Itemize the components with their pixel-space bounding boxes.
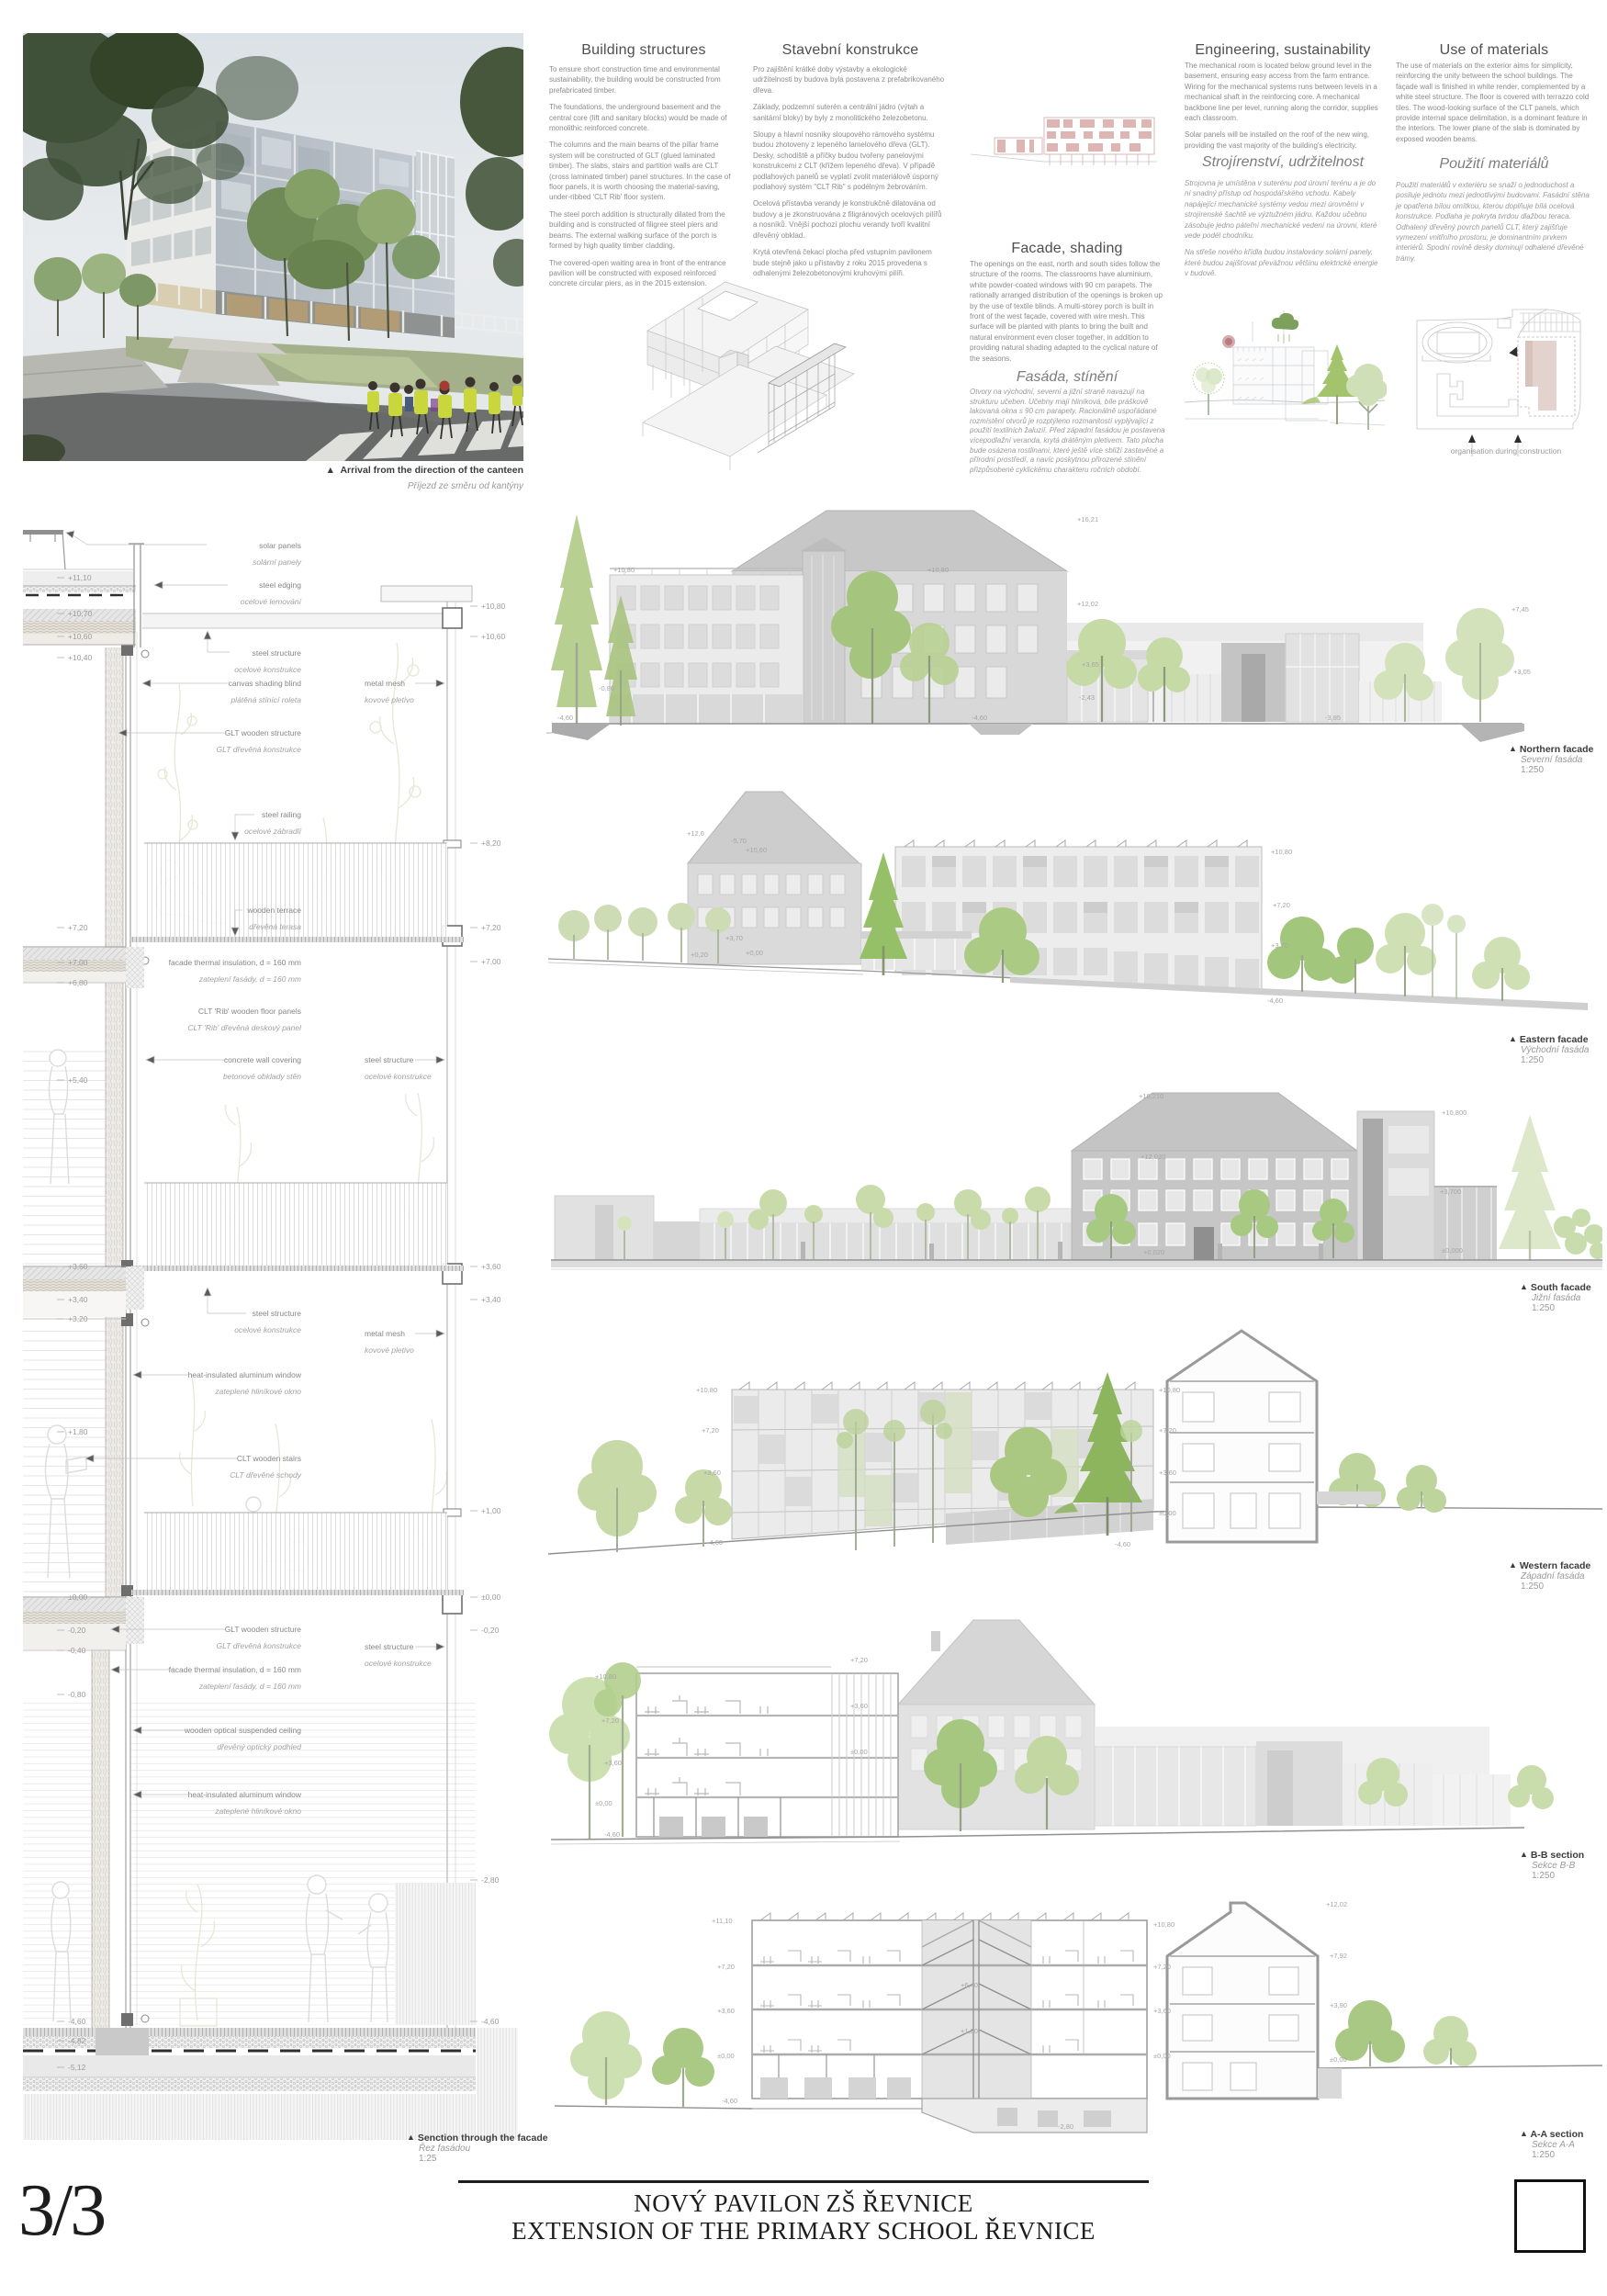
svg-text:wooden terrace: wooden terrace — [246, 906, 301, 915]
svg-text:-3,85: -3,85 — [1325, 714, 1341, 722]
svg-text:dřevěný optický podhled: dřevěný optický podhled — [217, 1742, 301, 1751]
svg-text:-5,12: -5,12 — [68, 2063, 86, 2072]
svg-text:dřevěná terasa: dřevěná terasa — [249, 922, 301, 931]
svg-text:GLT dřevěná konstrukce: GLT dřevěná konstrukce — [217, 1641, 302, 1650]
svg-text:+0,20: +0,20 — [691, 951, 708, 959]
svg-text:+10,40: +10,40 — [68, 653, 93, 662]
svg-text:facade thermal insulation, d =: facade thermal insulation, d = 160 mm — [169, 958, 301, 967]
svg-text:ocelové konstrukce: ocelové konstrukce — [365, 1659, 432, 1668]
svg-text:kovové pletivo: kovové pletivo — [365, 1345, 414, 1355]
svg-text:-4,60: -4,60 — [722, 2097, 737, 2105]
svg-text:+7,20: +7,20 — [1273, 901, 1290, 909]
svg-text:-0,80: -0,80 — [68, 1690, 86, 1699]
svg-text:CLT 'Rib' wooden floor panels: CLT 'Rib' wooden floor panels — [198, 1007, 301, 1016]
svg-text:-4,60: -4,60 — [1267, 996, 1283, 1005]
svg-text:+3,05: +3,05 — [1513, 668, 1531, 676]
svg-text:ocelové konstrukce: ocelové konstrukce — [365, 1072, 432, 1081]
svg-text:-4,60: -4,60 — [68, 2017, 86, 2026]
svg-text:+7,45: +7,45 — [1511, 605, 1529, 613]
svg-text:+12,02: +12,02 — [1326, 1900, 1347, 1908]
svg-text:±0,00: ±0,00 — [1153, 2052, 1171, 2060]
svg-text:metal mesh: metal mesh — [365, 679, 405, 688]
svg-text:-4,82: -4,82 — [68, 2036, 86, 2045]
svg-text:-2,80: -2,80 — [1058, 2122, 1073, 2131]
svg-text:steel railing: steel railing — [262, 810, 301, 819]
svg-text:+3,20: +3,20 — [68, 1314, 88, 1323]
svg-text:+7,20: +7,20 — [717, 1963, 735, 1971]
svg-text:+10,60: +10,60 — [746, 846, 767, 854]
svg-text:+7,20: +7,20 — [1153, 1963, 1171, 1971]
svg-text:+3,60: +3,60 — [717, 2007, 735, 2015]
svg-text:+1,80: +1,80 — [961, 2027, 978, 2035]
svg-text:kovové pletivo: kovové pletivo — [365, 695, 414, 704]
svg-text:+12,020: +12,020 — [1141, 1153, 1165, 1161]
svg-text:±0,00: ±0,00 — [850, 1748, 868, 1756]
svg-text:CLT wooden stairs: CLT wooden stairs — [237, 1454, 301, 1463]
svg-text:zateplené hliníkové okno: zateplené hliníkové okno — [214, 1806, 301, 1816]
svg-text:+7,20: +7,20 — [702, 1426, 719, 1435]
svg-text:-2,43: -2,43 — [1079, 693, 1095, 702]
svg-text:facade thermal insulation, d =: facade thermal insulation, d = 160 mm — [169, 1665, 301, 1674]
svg-text:+0,020: +0,020 — [1143, 1248, 1164, 1256]
svg-text:+10,80: +10,80 — [696, 1386, 717, 1394]
svg-text:+3,65: +3,65 — [1082, 660, 1099, 669]
svg-text:canvas shading blind: canvas shading blind — [229, 679, 302, 688]
svg-text:+6,40: +6,40 — [961, 1981, 978, 1989]
svg-text:zateplení fasády, d = 160 mm: zateplení fasády, d = 160 mm — [198, 1682, 301, 1691]
svg-text:+10,70: +10,70 — [68, 609, 93, 618]
svg-text:+10,80: +10,80 — [1271, 848, 1292, 856]
svg-text:+3,40: +3,40 — [481, 1295, 501, 1304]
svg-text:solární panely: solární panely — [253, 557, 302, 567]
svg-text:zateplení fasády, d = 160 mm: zateplení fasády, d = 160 mm — [198, 974, 301, 984]
svg-text:ocelové konstrukce: ocelové konstrukce — [234, 1325, 301, 1334]
svg-text:±0,00: ±0,00 — [68, 1593, 87, 1602]
svg-text:CLT 'Rib' dřevěná deskový pane: CLT 'Rib' dřevěná deskový panel — [187, 1023, 302, 1032]
svg-text:betonové obklady stěn: betonové obklady stěn — [223, 1072, 301, 1081]
svg-text:+10,80: +10,80 — [481, 602, 506, 611]
svg-text:+11,10: +11,10 — [68, 573, 92, 582]
svg-text:+11,10: +11,10 — [712, 1917, 733, 1925]
svg-text:steel structure: steel structure — [253, 1309, 302, 1318]
svg-text:+12,6: +12,6 — [687, 829, 704, 838]
svg-text:+1,00: +1,00 — [481, 1506, 501, 1515]
svg-text:+3,60: +3,60 — [1153, 2007, 1171, 2015]
svg-text:+3,60: +3,60 — [481, 1262, 501, 1271]
svg-text:concrete wall covering: concrete wall covering — [224, 1055, 301, 1064]
svg-text:+3,60: +3,60 — [703, 1469, 721, 1477]
svg-text:GLT dřevěná konstrukce: GLT dřevěná konstrukce — [217, 745, 302, 754]
svg-text:±0,00: ±0,00 — [1330, 2055, 1347, 2064]
svg-text:heat-insulated aluminum window: heat-insulated aluminum window — [188, 1370, 302, 1379]
svg-text:-0,80: -0,80 — [599, 684, 614, 692]
svg-text:-4,60: -4,60 — [972, 714, 987, 722]
svg-text:+3,60: +3,60 — [1159, 1469, 1176, 1477]
svg-text:steel edging: steel edging — [259, 580, 301, 590]
svg-text:+10,80: +10,80 — [613, 566, 635, 574]
svg-text:-4,60: -4,60 — [557, 714, 573, 722]
svg-text:wooden optical suspended ceili: wooden optical suspended ceiling — [184, 1726, 301, 1735]
svg-text:ocelové lemování: ocelové lemování — [241, 597, 303, 606]
svg-text:+10,60: +10,60 — [481, 632, 506, 641]
svg-text:-4,60: -4,60 — [604, 1830, 620, 1839]
svg-text:+10,80: +10,80 — [595, 1672, 616, 1681]
svg-text:±0,00: ±0,00 — [717, 2052, 735, 2060]
svg-text:+3,70: +3,70 — [1271, 941, 1288, 950]
svg-text:+7,20: +7,20 — [481, 923, 501, 932]
svg-text:-4,60: -4,60 — [481, 2017, 500, 2026]
svg-text:+8,20: +8,20 — [481, 838, 501, 848]
svg-text:±0,00: ±0,00 — [595, 1799, 612, 1807]
svg-text:steel structure: steel structure — [253, 648, 302, 658]
svg-text:-0,20: -0,20 — [68, 1626, 86, 1635]
svg-text:ocelové konstrukce: ocelové konstrukce — [234, 665, 301, 674]
svg-text:+7,92: +7,92 — [1330, 1952, 1347, 1960]
svg-text:+16,21: +16,21 — [1077, 515, 1098, 523]
svg-text:+3,90: +3,90 — [1330, 2001, 1347, 2009]
svg-text:solar panels: solar panels — [259, 541, 301, 550]
svg-text:zateplené hliníkové okno: zateplené hliníkové okno — [214, 1387, 301, 1396]
svg-text:+18,210: +18,210 — [1139, 1092, 1163, 1100]
svg-text:+7,00: +7,00 — [481, 957, 501, 966]
svg-text:-0,40: -0,40 — [68, 1646, 86, 1655]
svg-text:-5,70: -5,70 — [731, 837, 747, 845]
svg-text:steel structure: steel structure — [365, 1055, 414, 1064]
svg-text:+7,20: +7,20 — [601, 1716, 619, 1725]
svg-text:+5,40: +5,40 — [68, 1075, 88, 1085]
svg-text:+10,80: +10,80 — [1153, 1920, 1174, 1929]
svg-text:+1,80: +1,80 — [68, 1427, 88, 1436]
svg-text:GLT wooden structure: GLT wooden structure — [225, 1625, 302, 1634]
svg-text:+3,70: +3,70 — [725, 934, 743, 942]
svg-text:-2,80: -2,80 — [481, 1875, 500, 1885]
svg-text:+3,60: +3,60 — [68, 1262, 88, 1271]
svg-text:±0,000: ±0,000 — [1442, 1246, 1463, 1255]
svg-text:plátěná stínící roleta: plátěná stínící roleta — [230, 695, 301, 704]
svg-text:-4,60: -4,60 — [707, 1538, 723, 1547]
svg-text:+10,80: +10,80 — [927, 566, 949, 574]
svg-text:-4,60: -4,60 — [1115, 1540, 1130, 1548]
svg-text:+3,60: +3,60 — [604, 1759, 622, 1767]
svg-text:+7,20: +7,20 — [68, 923, 88, 932]
svg-text:+6,80: +6,80 — [68, 978, 88, 987]
svg-text:+3,40: +3,40 — [68, 1295, 88, 1304]
svg-text:GLT wooden structure: GLT wooden structure — [225, 728, 302, 737]
svg-text:heat-insulated aluminum window: heat-insulated aluminum window — [188, 1790, 302, 1799]
svg-text:-0,20: -0,20 — [481, 1626, 500, 1635]
svg-text:+0,00: +0,00 — [746, 949, 763, 957]
svg-text:+7,20: +7,20 — [1159, 1426, 1176, 1435]
svg-text:+3,700: +3,700 — [1440, 1187, 1461, 1196]
svg-text:ocelové zábradlí: ocelové zábradlí — [244, 827, 303, 836]
svg-text:+3,60: +3,60 — [850, 1702, 868, 1710]
svg-text:±0,00: ±0,00 — [481, 1593, 500, 1602]
svg-text:CLT dřevěné schody: CLT dřevěné schody — [230, 1470, 302, 1480]
svg-text:±0,00: ±0,00 — [1159, 1509, 1176, 1517]
svg-text:+10,60: +10,60 — [68, 632, 93, 641]
svg-text:+10,80: +10,80 — [1159, 1386, 1180, 1394]
svg-text:+12,02: +12,02 — [1077, 600, 1098, 608]
svg-text:+7,00: +7,00 — [68, 958, 88, 967]
svg-text:+7,20: +7,20 — [850, 1656, 868, 1664]
svg-text:metal mesh: metal mesh — [365, 1329, 405, 1338]
svg-text:steel structure: steel structure — [365, 1642, 414, 1651]
svg-text:+10,800: +10,800 — [1442, 1109, 1467, 1117]
